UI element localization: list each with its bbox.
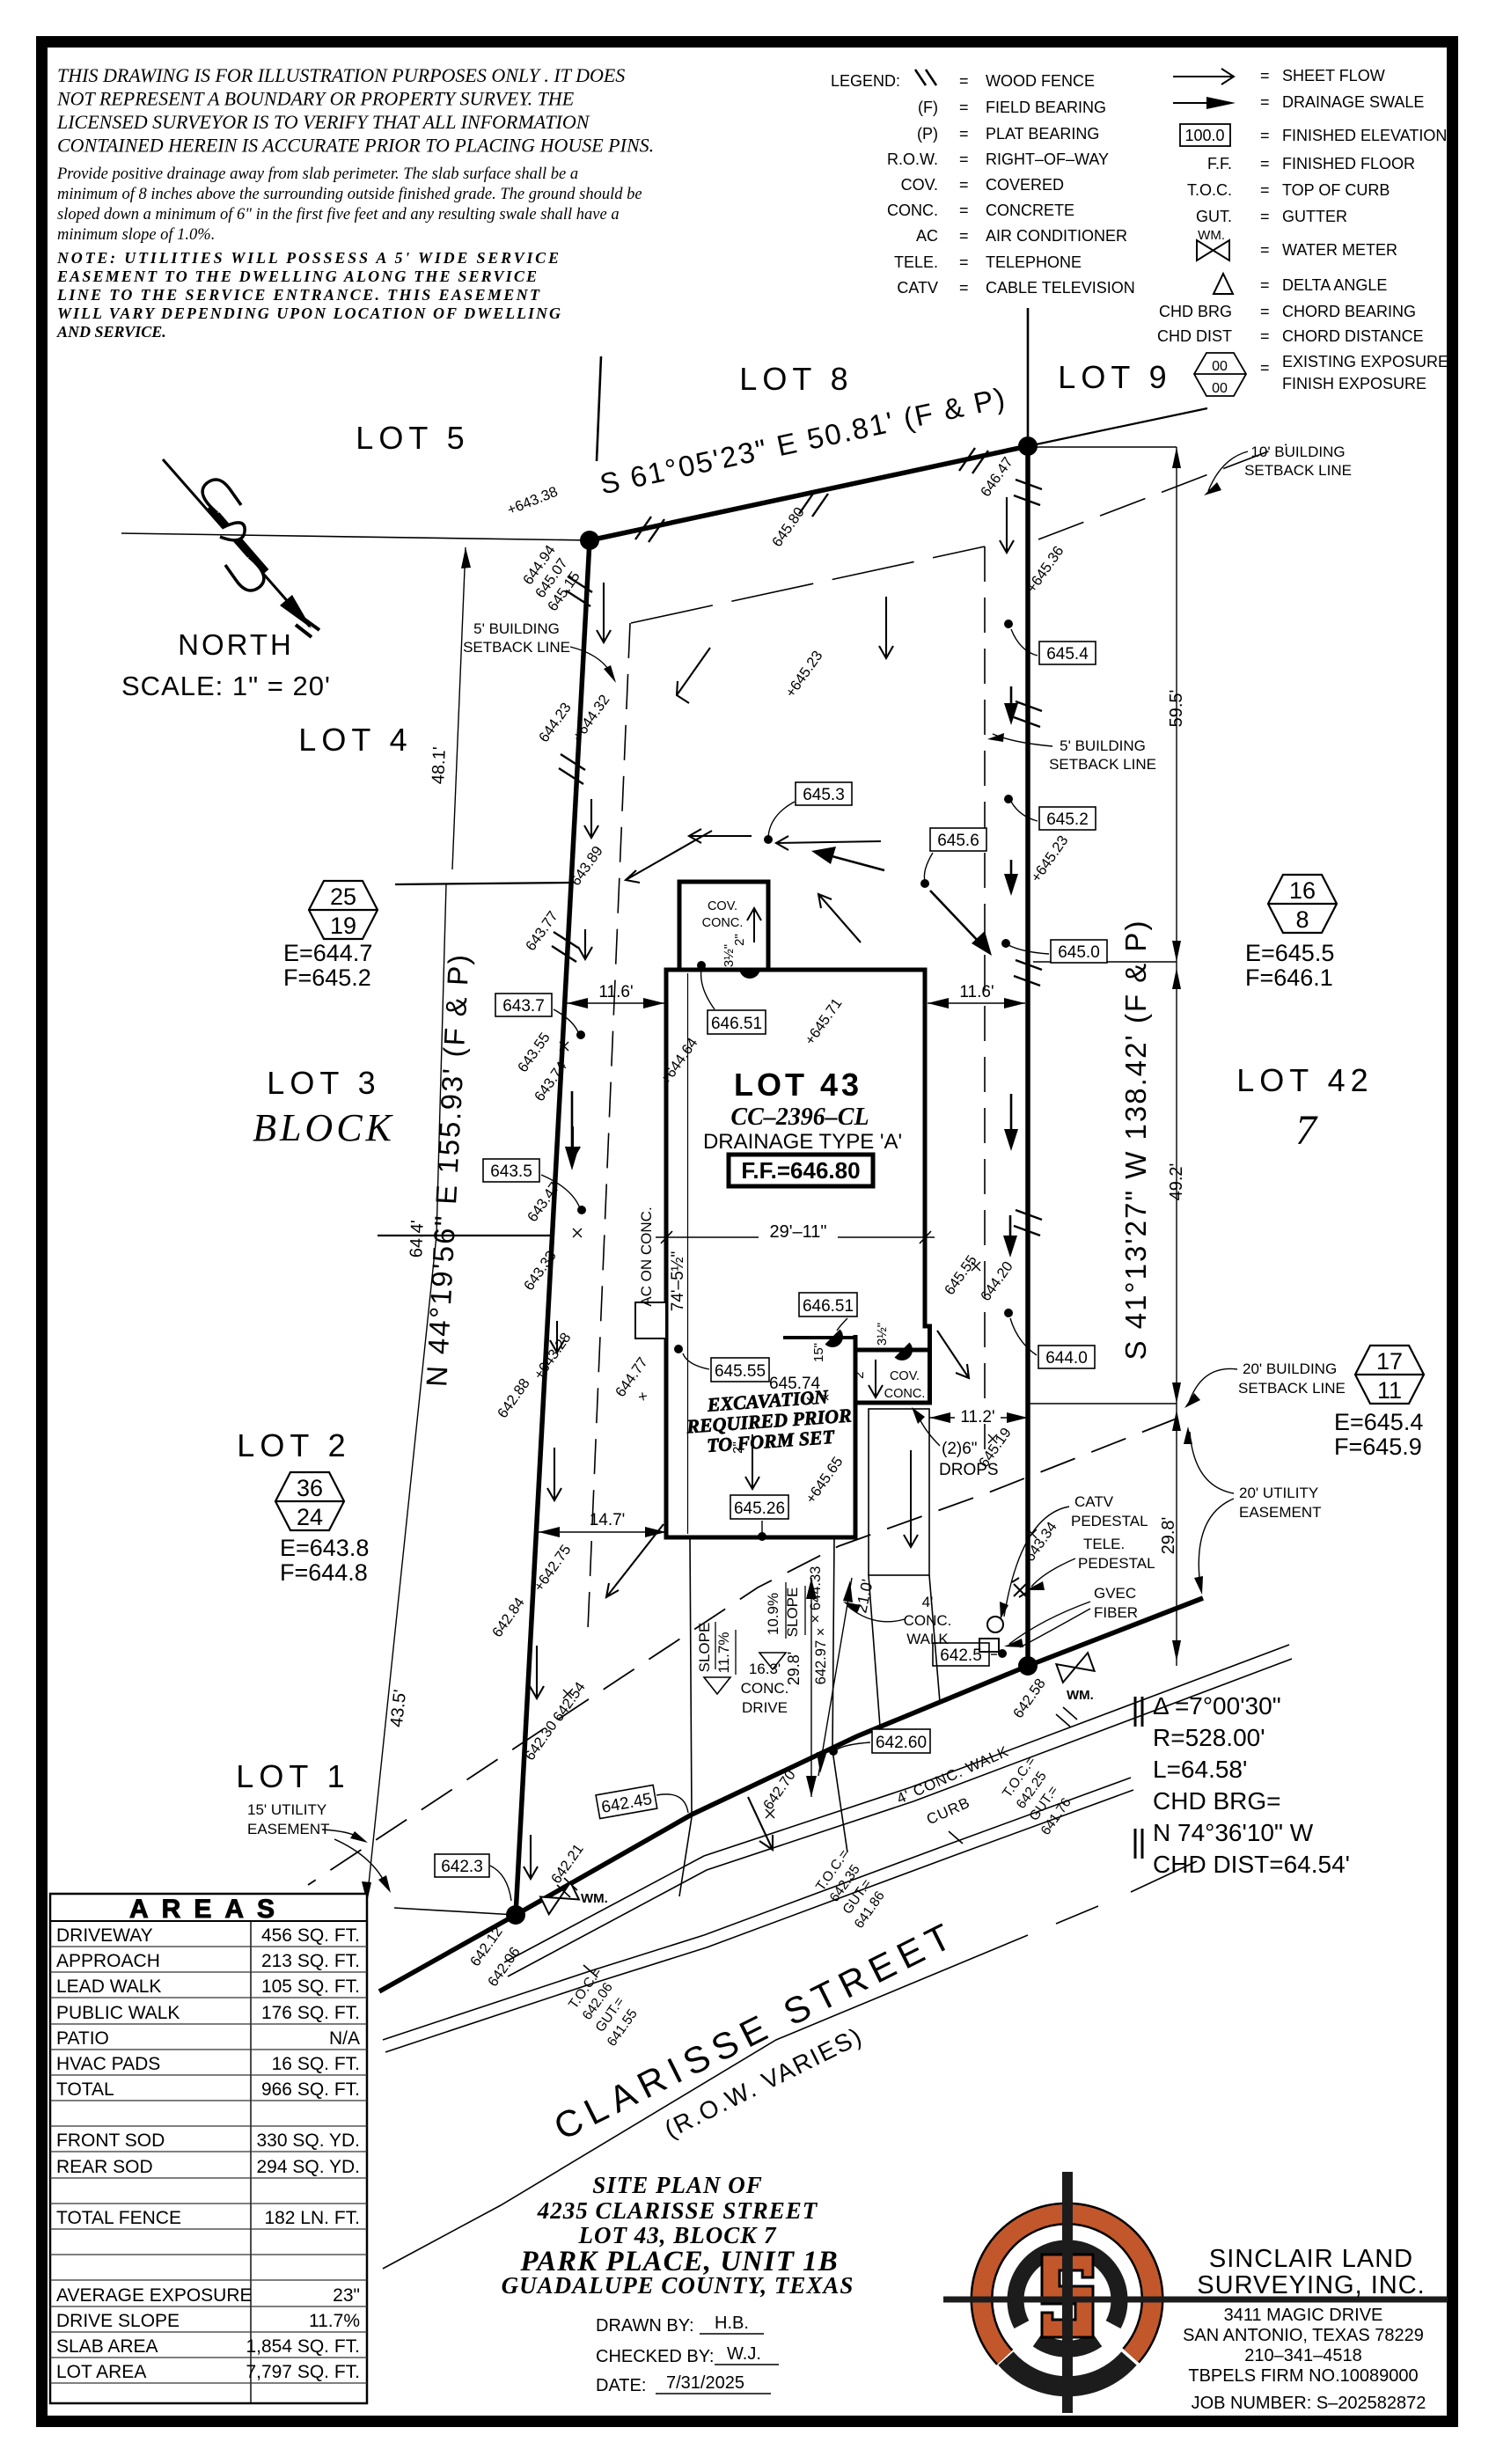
svg-text:645.2: 645.2 xyxy=(1046,810,1089,829)
svg-text:SURVEYING, INC.: SURVEYING, INC. xyxy=(1197,2271,1425,2299)
svg-text:CLARISSE STREET: CLARISSE STREET xyxy=(547,1912,964,2147)
svg-text:EASEMENT: EASEMENT xyxy=(247,1821,330,1837)
svg-text:(F): (F) xyxy=(918,99,938,116)
svg-text:643.55: 643.55 xyxy=(515,1030,554,1075)
svg-text:TBPELS FIRM NO.10089000: TBPELS FIRM NO.10089000 xyxy=(1188,2366,1418,2386)
svg-text:AREAS: AREAS xyxy=(129,1895,288,1924)
svg-text:645.3: 645.3 xyxy=(803,786,845,804)
svg-text:SLOPE: SLOPE xyxy=(696,1623,713,1673)
svg-text:TOP OF CURB: TOP OF CURB xyxy=(1282,181,1390,199)
svg-text:645.74: 645.74 xyxy=(769,1375,821,1393)
svg-text:EASEMENT: EASEMENT xyxy=(1239,1504,1322,1521)
svg-text:DRAINAGE SWALE: DRAINAGE SWALE xyxy=(1282,93,1424,111)
svg-text:× 644.33: × 644.33 xyxy=(808,1566,824,1624)
svg-text:T.O.C.: T.O.C. xyxy=(1187,181,1232,199)
svg-text:2": 2" xyxy=(730,1441,745,1454)
svg-text:DRIVE: DRIVE xyxy=(742,1699,788,1716)
svg-text:176 SQ. FT.: 176 SQ. FT. xyxy=(261,2003,360,2023)
svg-text:+643.28: +643.28 xyxy=(531,1330,574,1382)
svg-text:SETBACK LINE: SETBACK LINE xyxy=(463,639,570,656)
svg-text:FIBER: FIBER xyxy=(1094,1604,1138,1621)
svg-text:SETBACK LINE: SETBACK LINE xyxy=(1238,1380,1346,1397)
svg-text:SETBACK LINE: SETBACK LINE xyxy=(1049,756,1156,773)
svg-text:S 61°05'23" E 50.81' (F & P): S 61°05'23" E 50.81' (F & P) xyxy=(597,381,1009,501)
svg-text:DRAINAGE TYPE 'A': DRAINAGE TYPE 'A' xyxy=(703,1130,902,1154)
svg-text:DRIVEWAY: DRIVEWAY xyxy=(56,1925,153,1946)
svg-text:643.33: 643.33 xyxy=(521,1248,560,1294)
svg-text:TELE.: TELE. xyxy=(1083,1536,1125,1552)
svg-text:LOT 1: LOT 1 xyxy=(236,1758,349,1794)
svg-text:WOOD FENCE: WOOD FENCE xyxy=(986,72,1095,90)
svg-text:49.2': 49.2' xyxy=(1167,1163,1186,1201)
svg-text:AC: AC xyxy=(916,227,938,245)
svg-text:CHD DIST: CHD DIST xyxy=(1157,327,1232,345)
svg-text:CABLE TELEVISION: CABLE TELEVISION xyxy=(986,279,1135,297)
svg-text:20' UTILITY: 20' UTILITY xyxy=(1239,1485,1318,1501)
svg-text:SLAB AREA: SLAB AREA xyxy=(56,2336,158,2357)
svg-text:minimum of 8 inches above the: minimum of 8 inches above the surroundin… xyxy=(57,186,642,203)
svg-text:WM.: WM. xyxy=(1067,1688,1094,1703)
svg-text:PEDESTAL: PEDESTAL xyxy=(1078,1555,1155,1572)
svg-text:SAN ANTONIO, TEXAS 78229: SAN ANTONIO, TEXAS 78229 xyxy=(1183,2326,1424,2345)
svg-text:11.2': 11.2' xyxy=(960,1408,994,1426)
svg-text:=: = xyxy=(959,99,969,116)
svg-text:COV.: COV. xyxy=(708,899,737,913)
svg-text:FRONT SOD: FRONT SOD xyxy=(56,2130,165,2151)
svg-text:Δ =7°00'30": Δ =7°00'30" xyxy=(1153,1692,1281,1720)
svg-text:N 44°19'56" E 155.93' (F & P): N 44°19'56" E 155.93' (F & P) xyxy=(420,952,475,1388)
svg-text:GUTTER: GUTTER xyxy=(1282,208,1347,225)
svg-text:SLOPE: SLOPE xyxy=(784,1588,801,1638)
svg-text:11: 11 xyxy=(1377,1377,1402,1404)
svg-text:FINISHED ELEVATION: FINISHED ELEVATION xyxy=(1282,127,1447,144)
svg-text:11.7%: 11.7% xyxy=(309,2311,360,2331)
svg-text:=: = xyxy=(1260,93,1270,111)
svg-text:642.84: 642.84 xyxy=(489,1595,528,1640)
svg-text:00: 00 xyxy=(1212,359,1228,374)
svg-text:16: 16 xyxy=(1289,877,1316,904)
svg-text:F=644.8: F=644.8 xyxy=(280,1559,368,1586)
svg-text:N/A: N/A xyxy=(329,2028,360,2049)
svg-text:AIR CONDITIONER: AIR CONDITIONER xyxy=(986,227,1127,245)
svg-text:=: = xyxy=(1260,181,1270,199)
svg-text:3411 MAGIC DRIVE: 3411 MAGIC DRIVE xyxy=(1224,2306,1383,2325)
svg-text:210–341–4518: 210–341–4518 xyxy=(1244,2346,1361,2365)
svg-text:×: × xyxy=(634,1389,652,1404)
svg-text:182 LN. FT.: 182 LN. FT. xyxy=(264,2208,360,2228)
svg-text:CATV: CATV xyxy=(897,279,938,297)
svg-text:7,797 SQ. FT.: 7,797 SQ. FT. xyxy=(246,2362,360,2382)
svg-text:GUADALUPE COUNTY, TEXAS: GUADALUPE COUNTY, TEXAS xyxy=(502,2272,854,2299)
svg-text:AC ON CONC.: AC ON CONC. xyxy=(638,1206,655,1306)
svg-text:3½": 3½" xyxy=(722,944,737,967)
svg-text:24: 24 xyxy=(297,1504,323,1530)
svg-text:LICENSED SURVEYOR IS TO VERIFY: LICENSED SURVEYOR IS TO VERIFY THAT ALL … xyxy=(56,111,590,133)
svg-text:CONC.: CONC. xyxy=(702,916,744,930)
svg-text:GUT.: GUT. xyxy=(1196,208,1232,225)
svg-text:1,854 SQ. FT.: 1,854 SQ. FT. xyxy=(246,2336,360,2357)
svg-text:LOT 43, BLOCK 7: LOT 43, BLOCK 7 xyxy=(577,2222,777,2248)
svg-text:FIELD BEARING: FIELD BEARING xyxy=(986,99,1106,116)
svg-text:100.0: 100.0 xyxy=(1184,127,1224,144)
svg-text:7: 7 xyxy=(1295,1107,1318,1154)
svg-text:HVAC PADS: HVAC PADS xyxy=(56,2054,160,2074)
svg-text:=: = xyxy=(959,125,969,143)
svg-text:=: = xyxy=(1260,208,1270,225)
svg-text:=: = xyxy=(1260,303,1270,320)
svg-text:7/31/2025: 7/31/2025 xyxy=(666,2373,744,2393)
svg-text:20' BUILDING: 20' BUILDING xyxy=(1243,1360,1337,1377)
svg-text:644.20: 644.20 xyxy=(978,1258,1016,1304)
svg-text:NOTE: UTILITIES WILL POSSESS A: NOTE: UTILITIES WILL POSSESS A 5' WIDE S… xyxy=(56,249,559,267)
svg-text:REAR SOD: REAR SOD xyxy=(56,2157,153,2177)
svg-text:CHD BRG=: CHD BRG= xyxy=(1153,1787,1280,1815)
svg-text:=: = xyxy=(1260,327,1270,345)
svg-text:646.47: 646.47 xyxy=(978,454,1016,500)
svg-text:17: 17 xyxy=(1376,1348,1403,1375)
svg-text:CONC.: CONC. xyxy=(741,1680,789,1697)
svg-text:CHECKED BY:: CHECKED BY: xyxy=(596,2347,714,2366)
svg-text:E=643.8: E=643.8 xyxy=(280,1535,369,1561)
svg-text:645.55: 645.55 xyxy=(715,1362,766,1381)
svg-text:WILL VARY DEPENDING UPON LOCAT: WILL VARY DEPENDING UPON LOCATION OF DWE… xyxy=(57,304,561,322)
svg-text:2": 2" xyxy=(732,934,747,946)
svg-text:LOT 43: LOT 43 xyxy=(734,1067,862,1103)
svg-text:11.7%: 11.7% xyxy=(715,1632,732,1674)
svg-text:CONTAINED HEREIN IS ACCURATE P: CONTAINED HEREIN IS ACCURATE PRIOR TO PL… xyxy=(57,135,654,157)
svg-text:GVEC: GVEC xyxy=(1094,1585,1136,1602)
svg-text:645.4: 645.4 xyxy=(1046,645,1089,664)
svg-text:5' BUILDING: 5' BUILDING xyxy=(473,620,560,637)
svg-text:DELTA ANGLE: DELTA ANGLE xyxy=(1282,276,1387,294)
svg-text:21.0': 21.0' xyxy=(852,1578,876,1615)
svg-text:644.0: 644.0 xyxy=(1045,1349,1088,1368)
svg-text:WM.: WM. xyxy=(581,1891,608,1906)
svg-text:E=645.4: E=645.4 xyxy=(1334,1409,1423,1435)
svg-text:48.1': 48.1' xyxy=(429,746,449,784)
svg-text:213 SQ. FT.: 213 SQ. FT. xyxy=(261,1951,360,1971)
svg-text:F.F.=646.80: F.F.=646.80 xyxy=(741,1157,860,1184)
svg-text:SETBACK LINE: SETBACK LINE xyxy=(1244,462,1352,479)
svg-text:DRAWN BY:: DRAWN BY: xyxy=(596,2316,694,2336)
svg-text:THIS DRAWING IS FOR ILLUSTRATI: THIS DRAWING IS FOR ILLUSTRATION PURPOSE… xyxy=(57,64,625,86)
svg-text:15' UTILITY: 15' UTILITY xyxy=(247,1801,326,1818)
svg-text:5' BUILDING: 5' BUILDING xyxy=(1060,737,1146,754)
svg-text:642.58: 642.58 xyxy=(1010,1676,1049,1721)
svg-text:LOT 3: LOT 3 xyxy=(267,1065,380,1101)
svg-text:RIGHT–OF–WAY: RIGHT–OF–WAY xyxy=(986,150,1109,168)
svg-text:COVERED: COVERED xyxy=(986,176,1064,194)
svg-text:FINISHED FLOOR: FINISHED FLOOR xyxy=(1282,155,1415,172)
svg-text:=: = xyxy=(1260,359,1270,377)
svg-text:966 SQ. FT.: 966 SQ. FT. xyxy=(261,2079,360,2100)
svg-text:29.8': 29.8' xyxy=(785,1652,803,1685)
svg-text:SINCLAIR LAND: SINCLAIR LAND xyxy=(1209,2245,1413,2273)
svg-text:105 SQ. FT.: 105 SQ. FT. xyxy=(261,1976,360,1997)
svg-text:NOT REPRESENT A BOUNDARY OR PR: NOT REPRESENT A BOUNDARY OR PROPERTY SUR… xyxy=(56,88,575,110)
svg-text:CURB: CURB xyxy=(924,1794,972,1829)
svg-text:=: = xyxy=(959,202,969,219)
svg-text:10' BUILDING: 10' BUILDING xyxy=(1250,444,1345,460)
svg-text:=: = xyxy=(959,227,969,245)
svg-text:SITE PLAN OF: SITE PLAN OF xyxy=(592,2172,763,2198)
svg-text:=: = xyxy=(959,176,969,194)
svg-text:E=645.5: E=645.5 xyxy=(1245,940,1334,966)
svg-text:645.6: 645.6 xyxy=(937,832,979,850)
svg-text:W.J.: W.J. xyxy=(727,2344,761,2364)
svg-text:+644.32: +644.32 xyxy=(569,692,612,744)
svg-text:294 SQ. YD.: 294 SQ. YD. xyxy=(256,2157,360,2177)
svg-text:TELE.: TELE. xyxy=(894,253,938,271)
svg-text:644.23: 644.23 xyxy=(536,700,575,745)
svg-text:(P): (P) xyxy=(917,125,938,143)
svg-text:E=644.7: E=644.7 xyxy=(283,940,372,966)
svg-text:64.4': 64.4' xyxy=(407,1220,427,1258)
svg-text:642.88: 642.88 xyxy=(495,1375,533,1421)
svg-text:FINISH EXPOSURE: FINISH EXPOSURE xyxy=(1282,375,1426,392)
svg-text:3½": 3½" xyxy=(875,1323,890,1346)
svg-text:CONC.: CONC. xyxy=(887,202,938,219)
svg-text:AND SERVICE.: AND SERVICE. xyxy=(56,323,166,341)
svg-text:10.9%: 10.9% xyxy=(765,1593,781,1635)
svg-text:2": 2" xyxy=(852,1367,867,1379)
svg-text:59.5': 59.5' xyxy=(1167,690,1186,728)
svg-text:APPROACH: APPROACH xyxy=(56,1951,160,1971)
svg-text:TELEPHONE: TELEPHONE xyxy=(986,253,1082,271)
svg-text:COV.: COV. xyxy=(890,1369,920,1383)
svg-text:645.80: 645.80 xyxy=(769,504,808,550)
svg-text:=: = xyxy=(959,72,969,90)
svg-text:WATER METER: WATER METER xyxy=(1282,241,1397,259)
svg-text:43.5': 43.5' xyxy=(387,1689,410,1728)
svg-text:643.7: 643.7 xyxy=(502,997,545,1016)
svg-text:CHD DIST=64.54': CHD DIST=64.54' xyxy=(1153,1851,1350,1878)
svg-text:COV.: COV. xyxy=(901,176,938,194)
svg-text:00: 00 xyxy=(1212,381,1228,396)
svg-text:F=645.2: F=645.2 xyxy=(283,964,371,991)
svg-text:646.51: 646.51 xyxy=(711,1015,762,1033)
svg-text:25: 25 xyxy=(330,884,356,910)
svg-text:Provide positive drainage away: Provide positive drainage away from slab… xyxy=(56,165,578,183)
svg-text:+645.23: +645.23 xyxy=(1028,832,1071,885)
svg-text:CHORD DISTANCE: CHORD DISTANCE xyxy=(1282,327,1424,345)
svg-text:LEGEND:: LEGEND: xyxy=(831,72,900,90)
svg-text:CONCRETE: CONCRETE xyxy=(986,202,1074,219)
svg-text:643.74: 643.74 xyxy=(532,1059,570,1104)
svg-text:SHEET FLOW: SHEET FLOW xyxy=(1282,67,1385,84)
svg-text:AVERAGE EXPOSURE: AVERAGE EXPOSURE xyxy=(56,2285,253,2306)
svg-text:=: = xyxy=(1260,67,1270,84)
svg-text:L=64.58': L=64.58' xyxy=(1153,1756,1247,1783)
svg-text:4': 4' xyxy=(922,1594,934,1610)
svg-text:643.47: 643.47 xyxy=(524,1179,563,1225)
svg-text:PLAT BEARING: PLAT BEARING xyxy=(986,125,1099,143)
svg-text:16.3': 16.3' xyxy=(749,1661,781,1677)
svg-text:R.O.W.: R.O.W. xyxy=(887,150,938,168)
svg-text:19: 19 xyxy=(330,913,356,939)
svg-text:=: = xyxy=(959,150,969,168)
svg-text:642.97 ×: 642.97 × xyxy=(813,1628,829,1685)
svg-text:CONC.: CONC. xyxy=(904,1612,952,1629)
svg-text:CC–2396–CL: CC–2396–CL xyxy=(730,1104,869,1131)
svg-text:643.77: 643.77 xyxy=(523,908,561,954)
svg-text:11.6': 11.6' xyxy=(959,983,994,1001)
svg-text:36: 36 xyxy=(297,1475,323,1501)
svg-text:645.0: 645.0 xyxy=(1058,943,1100,962)
svg-text:LOT 42: LOT 42 xyxy=(1236,1062,1373,1098)
svg-text:=: = xyxy=(959,279,969,297)
svg-text:H.B.: H.B. xyxy=(715,2314,749,2333)
svg-text:14.7': 14.7' xyxy=(590,1511,626,1529)
svg-text:DATE:: DATE: xyxy=(596,2376,646,2395)
svg-text:15": 15" xyxy=(811,1343,826,1362)
svg-text:=: = xyxy=(1260,276,1270,294)
svg-text:F=646.1: F=646.1 xyxy=(1245,964,1333,991)
svg-text:+645.23: +645.23 xyxy=(782,648,825,700)
svg-text:S 41°13'27" W 138.42' (F & P): S 41°13'27" W 138.42' (F & P) xyxy=(1119,920,1152,1360)
svg-text:=: = xyxy=(1260,241,1270,259)
svg-text:16 SQ. FT.: 16 SQ. FT. xyxy=(272,2054,360,2074)
svg-text:LOT 5: LOT 5 xyxy=(356,420,469,456)
svg-text:LOT 4: LOT 4 xyxy=(298,722,412,758)
svg-text:EASEMENT TO THE DWELLING ALONG: EASEMENT TO THE DWELLING ALONG THE SERVI… xyxy=(56,268,537,285)
svg-text:F=645.9: F=645.9 xyxy=(1334,1434,1422,1460)
svg-text:CATV: CATV xyxy=(1074,1493,1114,1510)
svg-text:WALK: WALK xyxy=(906,1631,949,1647)
svg-text:646.51: 646.51 xyxy=(803,1297,854,1316)
svg-text:WM.: WM. xyxy=(1198,228,1225,243)
svg-text:N 74°36'10" W: N 74°36'10" W xyxy=(1153,1819,1314,1846)
svg-text:CONC.: CONC. xyxy=(884,1387,926,1401)
svg-text:(2)6": (2)6" xyxy=(942,1440,978,1458)
svg-text:29.8': 29.8' xyxy=(1159,1517,1178,1555)
svg-text:456 SQ. FT.: 456 SQ. FT. xyxy=(261,1925,360,1946)
svg-text:LINE TO THE SERVICE ENTRANCE.: LINE TO THE SERVICE ENTRANCE. THIS EASEM… xyxy=(56,286,540,304)
svg-text:TOTAL FENCE: TOTAL FENCE xyxy=(56,2208,181,2228)
svg-text:LOT AREA: LOT AREA xyxy=(56,2362,146,2382)
svg-text:645.55: 645.55 xyxy=(942,1252,980,1298)
svg-text:BLOCK: BLOCK xyxy=(253,1106,395,1149)
svg-text:CHORD BEARING: CHORD BEARING xyxy=(1282,303,1416,320)
svg-text:+645.65: +645.65 xyxy=(803,1454,846,1507)
svg-text:643.5: 643.5 xyxy=(490,1162,532,1181)
svg-text:642.54: 642.54 xyxy=(550,1679,589,1725)
svg-text:PUBLIC WALK: PUBLIC WALK xyxy=(56,2003,180,2023)
svg-text:minimum slope of 1.0%.: minimum slope of 1.0%. xyxy=(57,226,215,244)
svg-text:23": 23" xyxy=(333,2285,360,2306)
svg-text:NORTH: NORTH xyxy=(178,628,294,661)
svg-text:642.60: 642.60 xyxy=(876,1734,927,1752)
svg-text:DRIVE SLOPE: DRIVE SLOPE xyxy=(56,2311,180,2331)
svg-text:=: = xyxy=(959,253,969,271)
svg-text:JOB NUMBER: S–202582872: JOB NUMBER: S–202582872 xyxy=(1192,2394,1426,2413)
svg-text:PEDESTAL: PEDESTAL xyxy=(1071,1513,1148,1529)
svg-text:+645.71: +645.71 xyxy=(802,995,845,1048)
svg-text:11.6': 11.6' xyxy=(598,983,633,1001)
svg-text:EXISTING EXPOSURE: EXISTING EXPOSURE xyxy=(1282,353,1448,370)
svg-text:F.F.: F.F. xyxy=(1207,155,1232,172)
svg-text:642.3: 642.3 xyxy=(441,1858,483,1876)
svg-text:645.26: 645.26 xyxy=(734,1500,785,1518)
svg-text:TOTAL: TOTAL xyxy=(56,2079,114,2100)
svg-text:×: × xyxy=(822,1390,830,1405)
svg-text:CHD BRG: CHD BRG xyxy=(1159,303,1232,320)
svg-text:=: = xyxy=(1260,155,1270,172)
svg-text:PATIO: PATIO xyxy=(56,2028,109,2049)
svg-text:LOT 9: LOT 9 xyxy=(1058,359,1171,395)
svg-text:LOT 2: LOT 2 xyxy=(237,1427,350,1463)
svg-text:SCALE: 1" = 20': SCALE: 1" = 20' xyxy=(121,671,331,701)
svg-text:74'–5½": 74'–5½" xyxy=(669,1251,687,1312)
svg-text:sloped down a minimum of 6" in: sloped down a minimum of 6" in the first… xyxy=(57,206,620,224)
svg-text:+643.38: +643.38 xyxy=(505,484,560,518)
svg-text:330 SQ. YD.: 330 SQ. YD. xyxy=(256,2130,360,2151)
svg-text:R=528.00': R=528.00' xyxy=(1153,1724,1265,1751)
svg-text:4235 CLARISSE STREET: 4235 CLARISSE STREET xyxy=(537,2197,818,2224)
svg-text:DROPS: DROPS xyxy=(939,1461,999,1479)
svg-text:LEAD WALK: LEAD WALK xyxy=(56,1976,161,1997)
svg-text:=: = xyxy=(1260,127,1270,144)
svg-text:642.5: 642.5 xyxy=(940,1646,982,1665)
svg-text:8: 8 xyxy=(1295,906,1309,933)
svg-text:LOT 8: LOT 8 xyxy=(739,361,853,397)
svg-text:29'–11": 29'–11" xyxy=(769,1222,826,1242)
